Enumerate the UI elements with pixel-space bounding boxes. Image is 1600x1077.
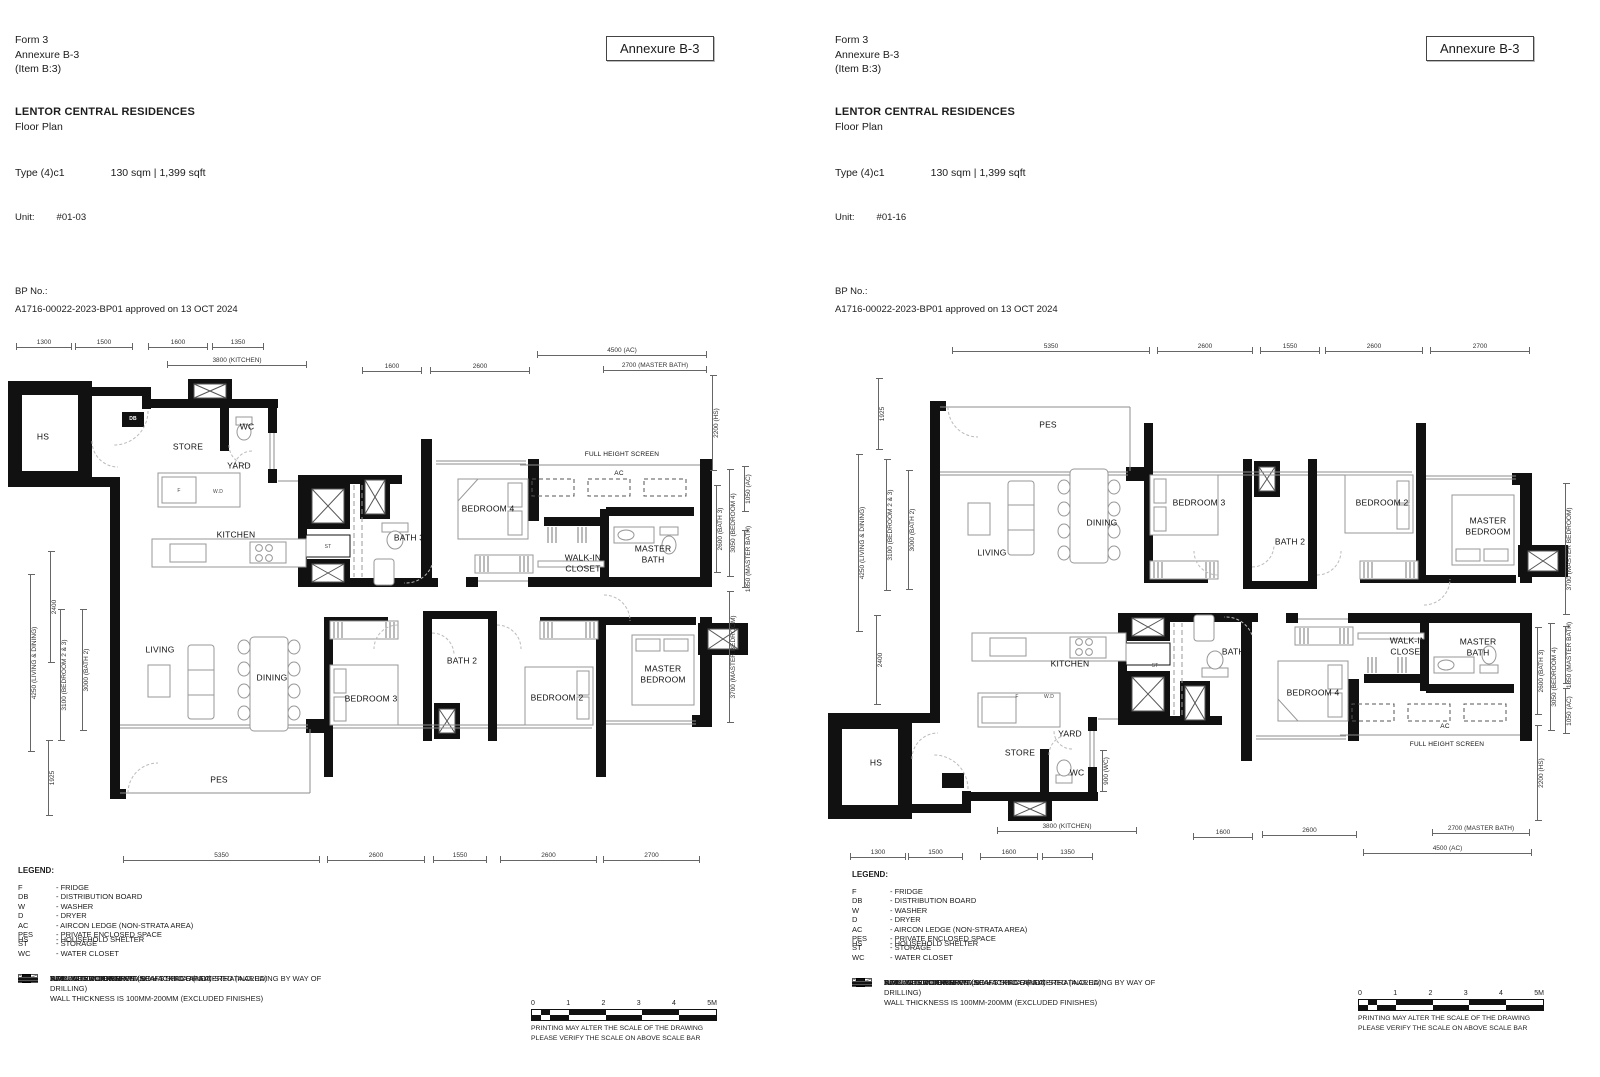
type-label: Type (4)c1 bbox=[835, 167, 885, 179]
scale-labels: 012345M bbox=[531, 1000, 717, 1007]
dimension-label: 1300 bbox=[16, 337, 72, 348]
type-label: Type (4)c1 bbox=[15, 167, 65, 179]
floorplan-panel-left: Form 3Annexure B-3(Item B:3) Annexure B-… bbox=[0, 0, 800, 1077]
form-line: Form 3 bbox=[15, 33, 79, 48]
room-label: YARD bbox=[1058, 729, 1082, 740]
dimension-label: 1600 bbox=[1193, 827, 1253, 838]
dimension-label: 1600 bbox=[980, 847, 1038, 858]
room-label: STORE bbox=[173, 442, 203, 453]
bp-value: A1716-00022-2023-BP01 approved on 13 OCT… bbox=[835, 301, 1058, 319]
form-line: Form 3 bbox=[835, 33, 899, 48]
dimension-label: 1050 (AC) bbox=[1565, 688, 1577, 734]
scale-note-1: PRINTING MAY ALTER THE SCALE OF THE DRAW… bbox=[1358, 1014, 1544, 1024]
scale-tick-label: 1 bbox=[1393, 990, 1397, 997]
bp-block: BP No.: A1716-00022-2023-BP01 approved o… bbox=[15, 283, 238, 319]
scale-tick-label: 1 bbox=[566, 1000, 570, 1007]
dimension-label: 2600 bbox=[430, 361, 530, 372]
scale-bar-graphic bbox=[1358, 999, 1544, 1011]
room-label: F bbox=[1015, 694, 1018, 700]
legend-symbol-icon bbox=[852, 981, 872, 985]
scale-tick-label: 0 bbox=[531, 1000, 535, 1007]
room-label: ST bbox=[1152, 663, 1159, 669]
form-line: (Item B:3) bbox=[15, 62, 79, 77]
dimension-label: 2700 (MASTER BATH) bbox=[1432, 823, 1530, 834]
room-label: BEDROOM 4 bbox=[462, 504, 515, 515]
room-label: PES bbox=[1039, 420, 1057, 431]
room-label: HS bbox=[870, 758, 882, 769]
room-label: W.D bbox=[1044, 694, 1054, 700]
room-label: BATH 3 bbox=[394, 533, 424, 544]
legend: LEGEND: F- FRIDGEDB- DISTRIBUTION BOARDW… bbox=[852, 870, 1182, 978]
floorplan-drawing-right: PESLIVINGDININGBEDROOM 3BATH 2BEDROOM 2M… bbox=[820, 337, 1590, 877]
scale-tick-label: 5M bbox=[1534, 990, 1544, 997]
room-label: FULL HEIGHT SCREEN bbox=[585, 451, 659, 459]
room-label: LIVING bbox=[145, 645, 174, 656]
room-label: WC bbox=[1070, 768, 1085, 779]
floorplan-drawing-left: HSSTOREWCYARDKITCHENBATH 3BEDROOM 4WALK-… bbox=[0, 333, 770, 873]
dimension-label: 3700 (MASTER BEDROOM) bbox=[1565, 483, 1577, 615]
annexure-box: Annexure B-3 bbox=[606, 36, 714, 61]
project-title: LENTOR CENTRAL RESIDENCES bbox=[835, 106, 1015, 118]
dimension-label: 1350 bbox=[1042, 847, 1093, 858]
legend-row: HS- HOUSEHOLD SHELTER bbox=[852, 939, 978, 948]
legend-title: LEGEND: bbox=[18, 866, 348, 875]
legend-row: W- WASHER bbox=[852, 906, 1182, 915]
unit-row: Unit:#01-16 bbox=[835, 212, 906, 223]
bp-block: BP No.: A1716-00022-2023-BP01 approved o… bbox=[835, 283, 1058, 319]
unit-value: #01-16 bbox=[877, 212, 907, 223]
dimension-label: 3800 (KITCHEN) bbox=[167, 355, 307, 366]
room-label: HS bbox=[37, 432, 49, 443]
room-label: BEDROOM 3 bbox=[345, 694, 398, 705]
dimension-label: 1300 bbox=[850, 847, 906, 858]
room-label: MASTER BEDROOM bbox=[1465, 515, 1510, 536]
dimension-label: 4500 (AC) bbox=[1363, 843, 1532, 854]
scale-tick-label: 0 bbox=[1358, 990, 1362, 997]
dimension-label: 5350 bbox=[952, 341, 1150, 352]
floorplan-walls bbox=[820, 337, 1590, 877]
annexure-box: Annexure B-3 bbox=[1426, 36, 1534, 61]
dimension-label: 5350 bbox=[123, 850, 320, 861]
room-label: AC bbox=[614, 470, 623, 478]
legend-row: F- FRIDGE bbox=[18, 883, 348, 892]
room-label: MASTER BEDROOM bbox=[640, 663, 685, 684]
room-label: BATH 3 bbox=[1222, 647, 1252, 658]
type-row: Type (4)c1130 sqm | 1,399 sqft bbox=[15, 167, 206, 179]
room-label: WALK-IN CLOSET bbox=[565, 552, 602, 573]
room-label: ST bbox=[325, 544, 332, 550]
unit-value: #01-03 bbox=[57, 212, 87, 223]
dimension-label: 1925 bbox=[48, 740, 60, 816]
form-line: Annexure B-3 bbox=[15, 48, 79, 63]
floorplan-panel-right: Form 3Annexure B-3(Item B:3) Annexure B-… bbox=[820, 0, 1600, 1077]
form-line: (Item B:3) bbox=[835, 62, 899, 77]
scale-bar-graphic bbox=[531, 1009, 717, 1021]
dimension-label: 2600 bbox=[500, 850, 597, 861]
dimension-label: 3050 (BEDROOM 4) bbox=[729, 469, 741, 577]
room-label: DINING bbox=[1087, 518, 1118, 529]
legend-row: DB- DISTRIBUTION BOARD bbox=[852, 896, 1182, 905]
legend-row: W- WASHER bbox=[18, 902, 348, 911]
area-value: 130 sqm | 1,399 sqft bbox=[111, 167, 206, 179]
legend-row: WC- WATER CLOSET bbox=[852, 953, 1182, 962]
dimension-label: 1050 (AC) bbox=[744, 466, 756, 512]
scale-tick-label: 2 bbox=[1429, 990, 1433, 997]
scale-tick-label: 2 bbox=[602, 1000, 606, 1007]
dimension-label: 2600 bbox=[1157, 341, 1253, 352]
dimension-label: 900 (WC) bbox=[1102, 750, 1114, 792]
legend-symbol-row: NON - STRUCTURAL WALL bbox=[18, 974, 146, 984]
room-label: BEDROOM 2 bbox=[1356, 498, 1409, 509]
room-label: MASTER BATH bbox=[1460, 636, 1497, 657]
dimension-label: 1850 (MASTER BATH) bbox=[1565, 626, 1577, 684]
dimension-label: 1850 (MASTER BATH) bbox=[744, 530, 756, 588]
room-label: BEDROOM 4 bbox=[1287, 688, 1340, 699]
legend-row: WC- WATER CLOSET bbox=[18, 949, 348, 958]
legend-abbrev-list: F- FRIDGEDB- DISTRIBUTION BOARDW- WASHER… bbox=[852, 887, 1182, 962]
unit-label: Unit: bbox=[15, 212, 35, 223]
dimension-label: 1350 bbox=[212, 337, 264, 348]
dimension-label: 1600 bbox=[362, 361, 422, 372]
room-label: MASTER BATH bbox=[635, 543, 672, 564]
project-title: LENTOR CENTRAL RESIDENCES bbox=[15, 106, 195, 118]
dimension-label: 3700 (MASTER BEDROOM) bbox=[729, 591, 741, 723]
legend-row: AC- AIRCON LEDGE (NON-STRATA AREA) bbox=[852, 925, 1182, 934]
dimension-label: 2200 (HS) bbox=[1537, 725, 1549, 821]
room-label: WC bbox=[240, 422, 255, 433]
room-label: FULL HEIGHT SCREEN bbox=[1410, 741, 1484, 749]
scale-tick-label: 5M bbox=[707, 1000, 717, 1007]
room-label: AC bbox=[1440, 723, 1449, 731]
scale-note-2: PLEASE VERIFY THE SCALE ON ABOVE SCALE B… bbox=[1358, 1024, 1544, 1034]
legend-abbrev-list: F- FRIDGEDB- DISTRIBUTION BOARDW- WASHER… bbox=[18, 883, 348, 958]
scale-notes: PRINTING MAY ALTER THE SCALE OF THE DRAW… bbox=[1358, 1014, 1544, 1034]
subtitle: Floor Plan bbox=[15, 121, 63, 133]
dimension-label: 1550 bbox=[1260, 341, 1320, 352]
room-label: PES bbox=[210, 775, 228, 786]
dimension-label: 4500 (AC) bbox=[537, 345, 707, 356]
legend-row: AC- AIRCON LEDGE (NON-STRATA AREA) bbox=[18, 921, 348, 930]
scale-note-1: PRINTING MAY ALTER THE SCALE OF THE DRAW… bbox=[531, 1024, 717, 1034]
dimension-label: 1500 bbox=[75, 337, 133, 348]
page: Form 3Annexure B-3(Item B:3) Annexure B-… bbox=[0, 0, 1600, 1077]
unit-row: Unit:#01-03 bbox=[15, 212, 86, 223]
scale-tick-label: 4 bbox=[1499, 990, 1503, 997]
form-lines: Form 3Annexure B-3(Item B:3) bbox=[15, 33, 79, 77]
bp-label: BP No.: bbox=[835, 283, 1058, 301]
room-label: STORE bbox=[1005, 748, 1035, 759]
legend-row: F- FRIDGE bbox=[852, 887, 1182, 896]
unit-label: Unit: bbox=[835, 212, 855, 223]
dimension-label: 4250 (LIVING & DINING) bbox=[858, 454, 870, 632]
room-label: DB bbox=[129, 416, 137, 422]
room-label: KITCHEN bbox=[1051, 659, 1090, 670]
form-line: Annexure B-3 bbox=[835, 48, 899, 63]
dimension-label: 3000 (BATH 2) bbox=[908, 470, 920, 590]
dimension-label: 2700 bbox=[1430, 341, 1530, 352]
scale-bar: 012345M PRINTING MAY ALTER THE SCALE OF … bbox=[531, 1000, 717, 1044]
room-label: DB bbox=[967, 771, 975, 777]
room-label: WALK-IN CLOSET bbox=[1390, 635, 1427, 656]
scale-labels: 012345M bbox=[1358, 990, 1544, 997]
dimension-label: 1500 bbox=[908, 847, 963, 858]
scale-tick-label: 3 bbox=[1464, 990, 1468, 997]
dimension-label: 2600 bbox=[1262, 825, 1357, 836]
legend-symbol-row: NON - STRUCTURAL WALL bbox=[852, 978, 980, 988]
legend-title: LEGEND: bbox=[852, 870, 1182, 879]
dimension-label: 3100 (BEDROOM 2 & 3) bbox=[886, 459, 898, 591]
legend-row: DB- DISTRIBUTION BOARD bbox=[18, 892, 348, 901]
room-label: W.D bbox=[213, 489, 223, 495]
dimension-label: 2700 bbox=[603, 850, 700, 861]
legend-row: HS- HOUSEHOLD SHELTER bbox=[18, 935, 144, 944]
bp-value: A1716-00022-2023-BP01 approved on 13 OCT… bbox=[15, 301, 238, 319]
subtitle: Floor Plan bbox=[835, 121, 883, 133]
dimension-label: 1600 bbox=[148, 337, 208, 348]
scale-notes: PRINTING MAY ALTER THE SCALE OF THE DRAW… bbox=[531, 1024, 717, 1044]
room-label: F bbox=[177, 488, 180, 494]
bp-label: BP No.: bbox=[15, 283, 238, 301]
legend: LEGEND: F- FRIDGEDB- DISTRIBUTION BOARDW… bbox=[18, 866, 348, 974]
form-lines: Form 3Annexure B-3(Item B:3) bbox=[835, 33, 899, 77]
scale-tick-label: 3 bbox=[637, 1000, 641, 1007]
dimension-label: 1550 bbox=[433, 850, 487, 861]
dimension-label: 2700 (MASTER BATH) bbox=[603, 360, 707, 371]
scale-tick-label: 4 bbox=[672, 1000, 676, 1007]
room-label: BEDROOM 3 bbox=[1173, 498, 1226, 509]
room-label: BATH 2 bbox=[447, 656, 477, 667]
dimension-label: 1925 bbox=[878, 378, 890, 450]
dimension-label: 3800 (KITCHEN) bbox=[997, 821, 1137, 832]
legend-row: D- DRYER bbox=[852, 915, 1182, 924]
dimension-label: 2200 (HS) bbox=[712, 375, 724, 471]
dimension-label: 2400 bbox=[876, 615, 888, 705]
dimension-label: 2600 bbox=[327, 850, 425, 861]
type-row: Type (4)c1130 sqm | 1,399 sqft bbox=[835, 167, 1026, 179]
legend-row: D- DRYER bbox=[18, 911, 348, 920]
room-label: LIVING bbox=[977, 548, 1006, 559]
room-label: DINING bbox=[257, 673, 288, 684]
room-label: BATH 2 bbox=[1275, 537, 1305, 548]
dimension-label: 3050 (BEDROOM 4) bbox=[1550, 623, 1562, 731]
legend-symbol-icon bbox=[18, 977, 38, 981]
dimension-label: 4250 (LIVING & DINING) bbox=[30, 574, 42, 752]
area-value: 130 sqm | 1,399 sqft bbox=[931, 167, 1026, 179]
dimension-label: 3100 (BEDROOM 2 & 3) bbox=[60, 609, 72, 741]
dimension-label: 3000 (BATH 2) bbox=[82, 609, 94, 731]
room-label: KITCHEN bbox=[217, 530, 256, 541]
scale-note-2: PLEASE VERIFY THE SCALE ON ABOVE SCALE B… bbox=[531, 1034, 717, 1044]
dimension-label: 2600 (BATH 3) bbox=[1537, 627, 1549, 715]
floorplan-walls bbox=[0, 333, 770, 873]
room-label: BEDROOM 2 bbox=[531, 693, 584, 704]
dimension-label: 2600 (BATH 3) bbox=[716, 485, 728, 573]
room-label: YARD bbox=[227, 461, 251, 472]
scale-bar: 012345M PRINTING MAY ALTER THE SCALE OF … bbox=[1358, 990, 1544, 1034]
dimension-label: 2600 bbox=[1325, 341, 1423, 352]
